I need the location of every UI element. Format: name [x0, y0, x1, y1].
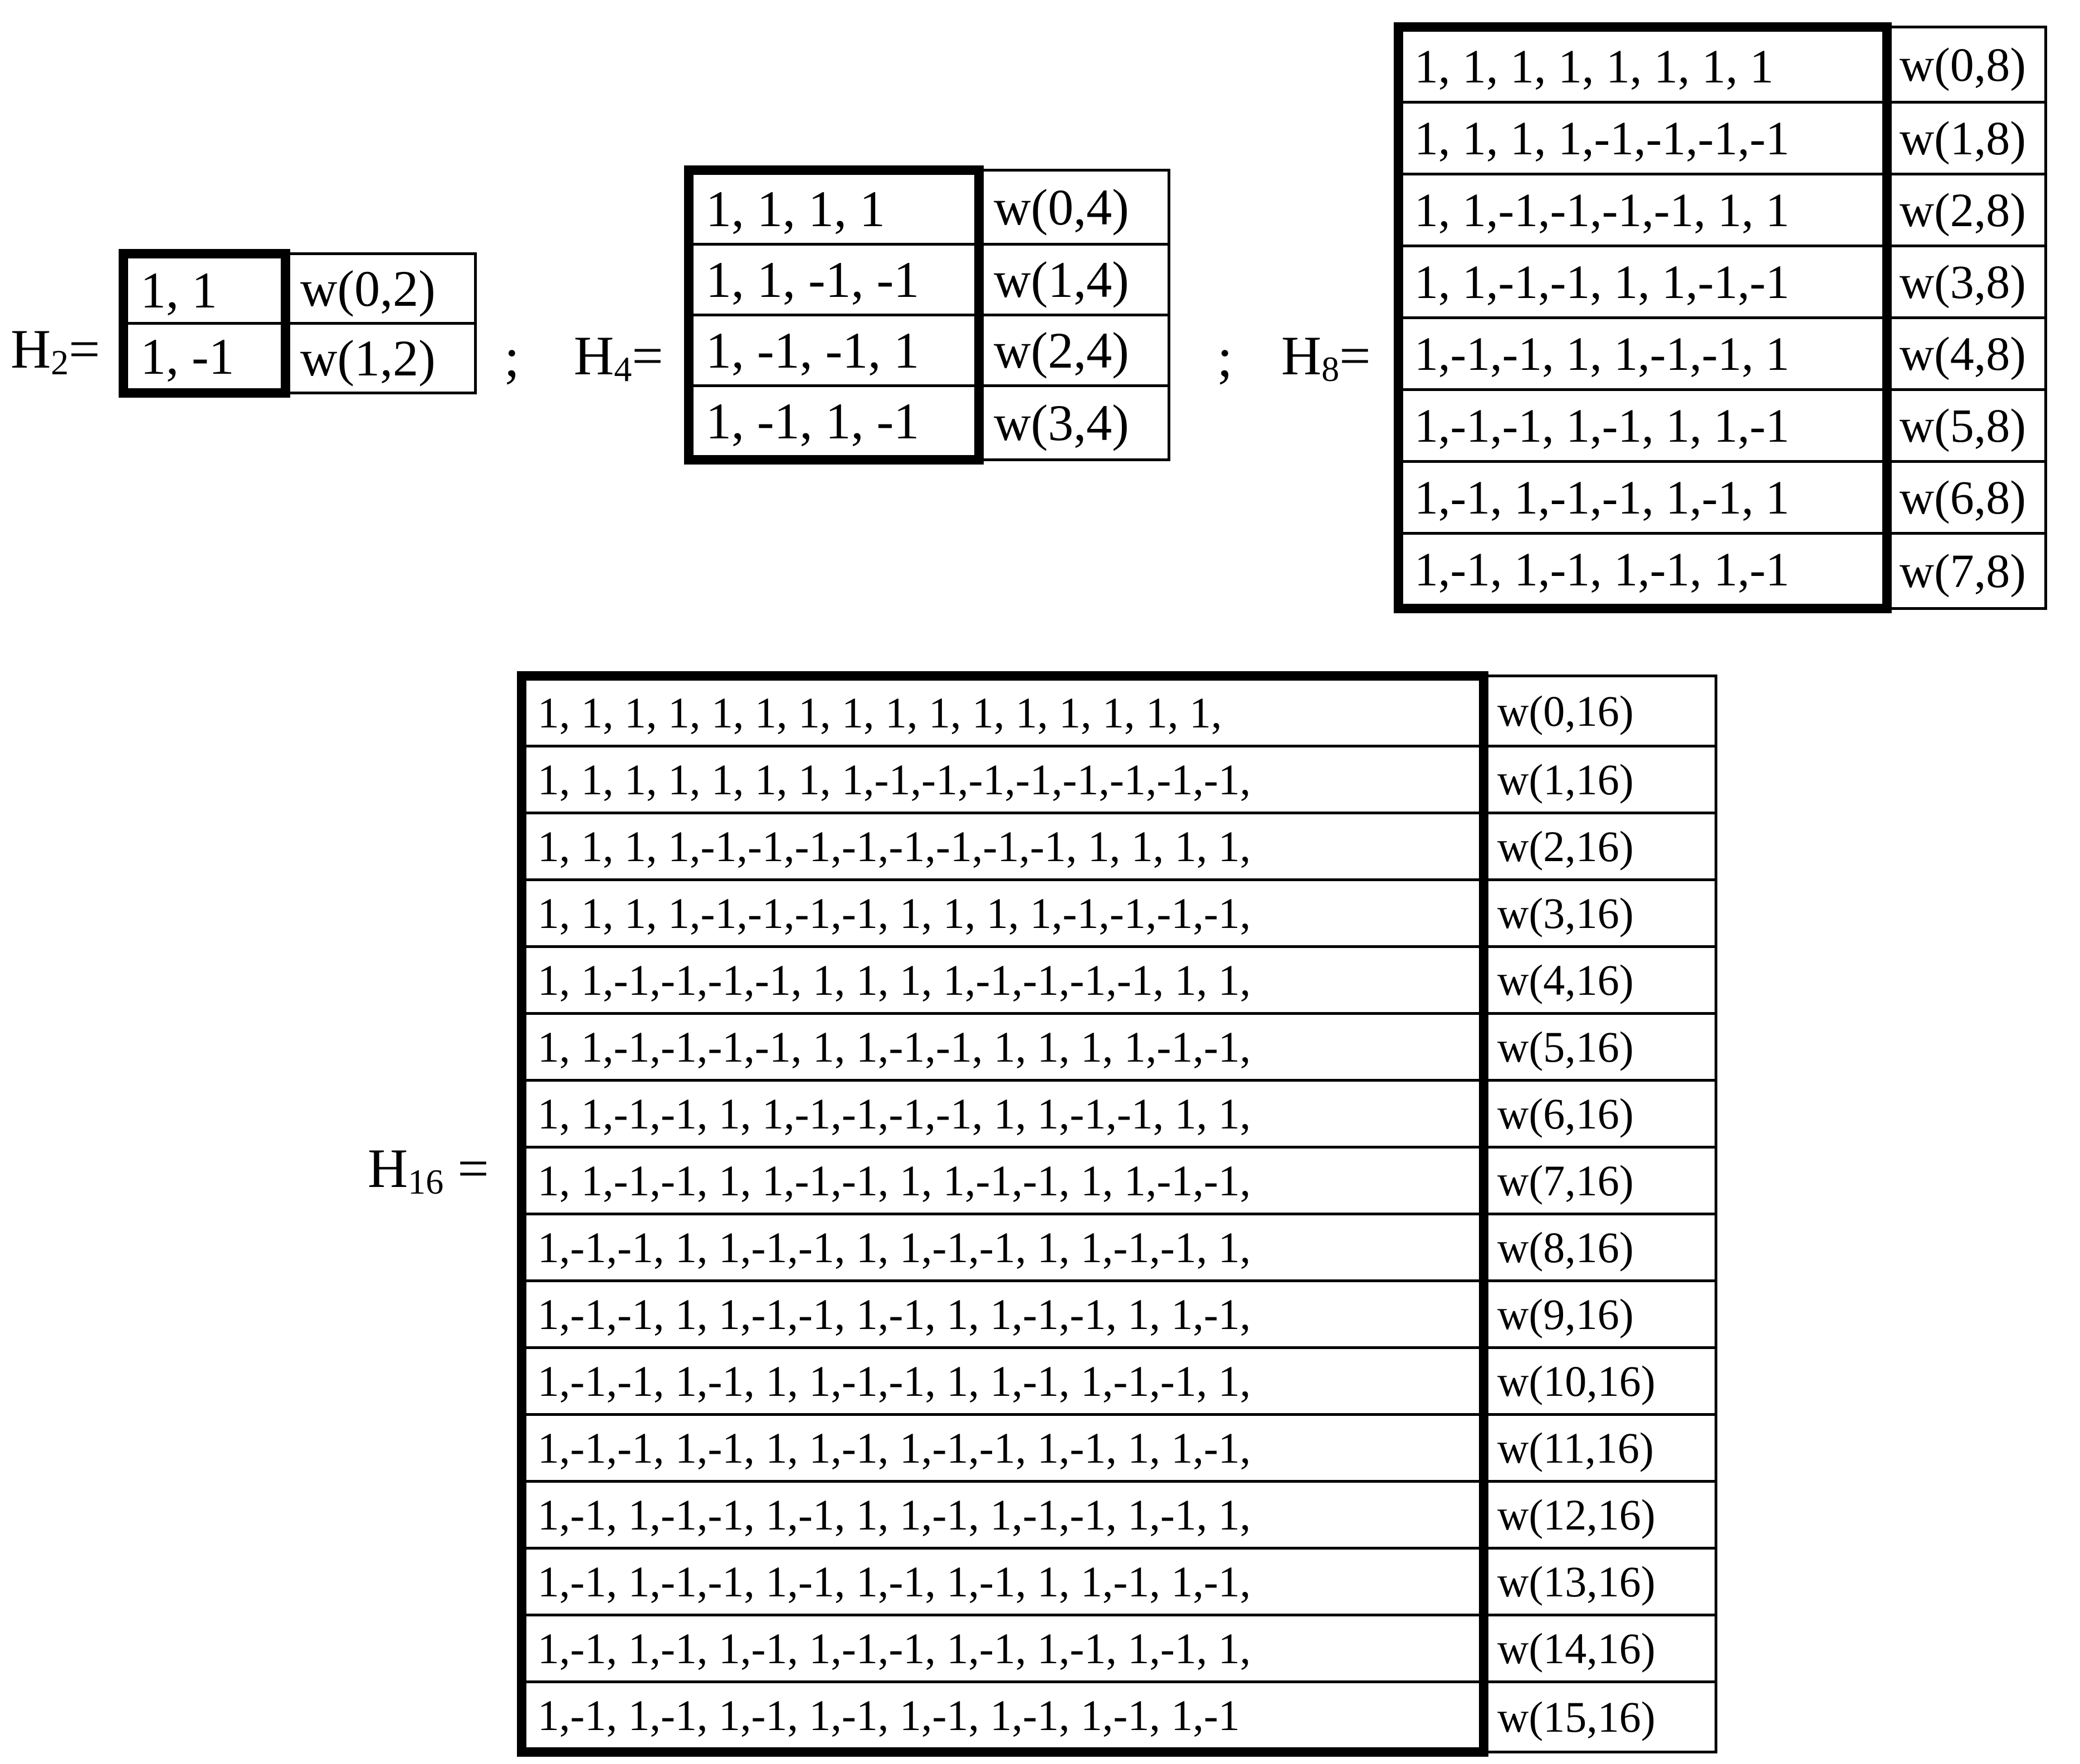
h4-row-1-values: 1, 1, -1, -1	[689, 245, 979, 315]
h16-row-2-values: 1, 1, 1, 1,-1,-1,-1,-1,-1,-1,-1,-1, 1, 1…	[522, 813, 1484, 880]
h16-label-base: H	[368, 1137, 408, 1199]
h4-row: 1, 1, -1, -1w(1,4)	[689, 245, 1169, 315]
h8-row: 1, 1,-1,-1, 1, 1,-1,-1w(3,8)	[1399, 246, 2046, 318]
h2-row-1-walsh-label: w(1,2)	[286, 324, 476, 393]
h8-row: 1, 1,-1,-1,-1,-1, 1, 1w(2,8)	[1399, 174, 2046, 246]
h8-row-3-values: 1, 1,-1,-1, 1, 1,-1,-1	[1399, 246, 1887, 318]
h2-row-1-values: 1, -1	[124, 324, 286, 393]
h8-row-6-walsh-label: w(6,8)	[1887, 462, 2046, 534]
h16-row-15-walsh-label: w(15,16)	[1484, 1682, 1716, 1752]
h2-label: H2=	[11, 321, 100, 377]
h16-row: 1, 1, 1, 1, 1, 1, 1, 1, 1, 1, 1, 1, 1, 1…	[522, 676, 1716, 746]
h4-row-2-walsh-label: w(2,4)	[979, 315, 1169, 386]
h16-table: 1, 1, 1, 1, 1, 1, 1, 1, 1, 1, 1, 1, 1, 1…	[517, 671, 1717, 1757]
h8-row: 1,-1, 1,-1, 1,-1, 1,-1w(7,8)	[1399, 534, 2046, 609]
h8-row-7-values: 1,-1, 1,-1, 1,-1, 1,-1	[1399, 534, 1887, 609]
h8-row-5-walsh-label: w(5,8)	[1887, 390, 2046, 462]
h16-row-14-values: 1,-1, 1,-1, 1,-1, 1,-1,-1, 1,-1, 1,-1, 1…	[522, 1615, 1484, 1682]
h16-row: 1,-1, 1,-1, 1,-1, 1,-1, 1,-1, 1,-1, 1,-1…	[522, 1682, 1716, 1752]
figure-canvas: H2= 1, 1w(0,2)1, -1w(1,2) ; H4= 1, 1, 1,…	[0, 0, 2080, 1764]
h16-row: 1,-1, 1,-1,-1, 1,-1, 1, 1,-1, 1,-1,-1, 1…	[522, 1482, 1716, 1548]
h8-row: 1,-1,-1, 1,-1, 1, 1,-1w(5,8)	[1399, 390, 2046, 462]
h16-row: 1,-1,-1, 1,-1, 1, 1,-1,-1, 1, 1,-1, 1,-1…	[522, 1348, 1716, 1415]
h16-row-13-values: 1,-1, 1,-1,-1, 1,-1, 1,-1, 1,-1, 1, 1,-1…	[522, 1548, 1484, 1615]
h8-row: 1, 1, 1, 1, 1, 1, 1, 1w(0,8)	[1399, 27, 2046, 102]
h16-row-11-walsh-label: w(11,16)	[1484, 1415, 1716, 1482]
h16-row-9-values: 1,-1,-1, 1, 1,-1,-1, 1,-1, 1, 1,-1,-1, 1…	[522, 1281, 1484, 1348]
h16-row: 1, 1, 1, 1,-1,-1,-1,-1, 1, 1, 1, 1,-1,-1…	[522, 880, 1716, 947]
h16-row-3-walsh-label: w(3,16)	[1484, 880, 1716, 947]
h4-row-3-walsh-label: w(3,4)	[979, 386, 1169, 460]
h16-row: 1, 1, 1, 1, 1, 1, 1, 1,-1,-1,-1,-1,-1,-1…	[522, 746, 1716, 813]
h2-label-base: H	[11, 318, 51, 380]
separator-semicolon-2: ;	[1217, 330, 1233, 385]
h16-row: 1,-1, 1,-1, 1,-1, 1,-1,-1, 1,-1, 1,-1, 1…	[522, 1615, 1716, 1682]
h16-label-equals: =	[443, 1137, 489, 1199]
separator-semicolon-1: ;	[504, 330, 520, 385]
h16-row-12-values: 1,-1, 1,-1,-1, 1,-1, 1, 1,-1, 1,-1,-1, 1…	[522, 1482, 1484, 1548]
h16-row-7-walsh-label: w(7,16)	[1484, 1147, 1716, 1214]
h16-row-15-values: 1,-1, 1,-1, 1,-1, 1,-1, 1,-1, 1,-1, 1,-1…	[522, 1682, 1484, 1752]
h16-row-5-walsh-label: w(5,16)	[1484, 1014, 1716, 1081]
h16-row: 1, 1,-1,-1, 1, 1,-1,-1,-1,-1, 1, 1,-1,-1…	[522, 1081, 1716, 1147]
h16-row-8-values: 1,-1,-1, 1, 1,-1,-1, 1, 1,-1,-1, 1, 1,-1…	[522, 1214, 1484, 1281]
h4-label: H4=	[574, 328, 663, 384]
h16-row-6-walsh-label: w(6,16)	[1484, 1081, 1716, 1147]
h2-row: 1, -1w(1,2)	[124, 324, 476, 393]
h2-row: 1, 1w(0,2)	[124, 254, 476, 324]
h8-row-4-walsh-label: w(4,8)	[1887, 318, 2046, 390]
h16-row: 1, 1,-1,-1, 1, 1,-1,-1, 1, 1,-1,-1, 1, 1…	[522, 1147, 1716, 1214]
h2-table: 1, 1w(0,2)1, -1w(1,2)	[119, 249, 477, 398]
h16-row: 1,-1,-1, 1, 1,-1,-1, 1,-1, 1, 1,-1,-1, 1…	[522, 1281, 1716, 1348]
h16-row-10-walsh-label: w(10,16)	[1484, 1348, 1716, 1415]
h4-row: 1, 1, 1, 1w(0,4)	[689, 170, 1169, 245]
h16-row-10-values: 1,-1,-1, 1,-1, 1, 1,-1,-1, 1, 1,-1, 1,-1…	[522, 1348, 1484, 1415]
h8-label-subscript: 8	[1321, 349, 1339, 389]
h4-row-3-values: 1, -1, 1, -1	[689, 386, 979, 460]
h8-row: 1,-1,-1, 1, 1,-1,-1, 1w(4,8)	[1399, 318, 2046, 390]
h16-label-subscript: 16	[408, 1162, 443, 1201]
h4-row: 1, -1, 1, -1w(3,4)	[689, 386, 1169, 460]
h16-row-2-walsh-label: w(2,16)	[1484, 813, 1716, 880]
h16-row-9-walsh-label: w(9,16)	[1484, 1281, 1716, 1348]
h16-row-4-values: 1, 1,-1,-1,-1,-1, 1, 1, 1, 1,-1,-1,-1,-1…	[522, 947, 1484, 1014]
h8-row-5-values: 1,-1,-1, 1,-1, 1, 1,-1	[1399, 390, 1887, 462]
h16-row-7-values: 1, 1,-1,-1, 1, 1,-1,-1, 1, 1,-1,-1, 1, 1…	[522, 1147, 1484, 1214]
h8-row: 1,-1, 1,-1,-1, 1,-1, 1w(6,8)	[1399, 462, 2046, 534]
h4-label-base: H	[574, 325, 614, 387]
h2-label-equals: =	[69, 318, 100, 380]
h16-row-5-values: 1, 1,-1,-1,-1,-1, 1, 1,-1,-1, 1, 1, 1, 1…	[522, 1014, 1484, 1081]
h4-table: 1, 1, 1, 1w(0,4)1, 1, -1, -1w(1,4)1, -1,…	[684, 165, 1170, 465]
h4-label-equals: =	[632, 325, 663, 387]
h16-label: H16 =	[368, 1141, 489, 1196]
h2-row-0-values: 1, 1	[124, 254, 286, 324]
h8-row: 1, 1, 1, 1,-1,-1,-1,-1w(1,8)	[1399, 102, 2046, 174]
h8-table: 1, 1, 1, 1, 1, 1, 1, 1w(0,8)1, 1, 1, 1,-…	[1394, 22, 2047, 613]
h8-row-0-values: 1, 1, 1, 1, 1, 1, 1, 1	[1399, 27, 1887, 102]
h16-row-12-walsh-label: w(12,16)	[1484, 1482, 1716, 1548]
h8-row-3-walsh-label: w(3,8)	[1887, 246, 2046, 318]
h16-row: 1,-1,-1, 1,-1, 1, 1,-1, 1,-1,-1, 1,-1, 1…	[522, 1415, 1716, 1482]
h16-row-14-walsh-label: w(14,16)	[1484, 1615, 1716, 1682]
h8-label-equals: =	[1339, 325, 1370, 387]
h16-row-6-values: 1, 1,-1,-1, 1, 1,-1,-1,-1,-1, 1, 1,-1,-1…	[522, 1081, 1484, 1147]
h16-row-3-values: 1, 1, 1, 1,-1,-1,-1,-1, 1, 1, 1, 1,-1,-1…	[522, 880, 1484, 947]
h2-row-0-walsh-label: w(0,2)	[286, 254, 476, 324]
h8-row-2-values: 1, 1,-1,-1,-1,-1, 1, 1	[1399, 174, 1887, 246]
h16-row-0-walsh-label: w(0,16)	[1484, 676, 1716, 746]
h16-row: 1, 1,-1,-1,-1,-1, 1, 1,-1,-1, 1, 1, 1, 1…	[522, 1014, 1716, 1081]
h4-label-subscript: 4	[614, 349, 632, 389]
h16-row-0-values: 1, 1, 1, 1, 1, 1, 1, 1, 1, 1, 1, 1, 1, 1…	[522, 676, 1484, 746]
h16-row-4-walsh-label: w(4,16)	[1484, 947, 1716, 1014]
h16-row-1-walsh-label: w(1,16)	[1484, 746, 1716, 813]
h4-row-2-values: 1, -1, -1, 1	[689, 315, 979, 386]
h16-row-8-walsh-label: w(8,16)	[1484, 1214, 1716, 1281]
h8-row-6-values: 1,-1, 1,-1,-1, 1,-1, 1	[1399, 462, 1887, 534]
h16-row: 1, 1, 1, 1,-1,-1,-1,-1,-1,-1,-1,-1, 1, 1…	[522, 813, 1716, 880]
h16-row: 1, 1,-1,-1,-1,-1, 1, 1, 1, 1,-1,-1,-1,-1…	[522, 947, 1716, 1014]
h2-label-subscript: 2	[51, 343, 69, 382]
h16-row-1-values: 1, 1, 1, 1, 1, 1, 1, 1,-1,-1,-1,-1,-1,-1…	[522, 746, 1484, 813]
h4-row: 1, -1, -1, 1w(2,4)	[689, 315, 1169, 386]
h8-row-4-values: 1,-1,-1, 1, 1,-1,-1, 1	[1399, 318, 1887, 390]
h16-row: 1,-1,-1, 1, 1,-1,-1, 1, 1,-1,-1, 1, 1,-1…	[522, 1214, 1716, 1281]
h16-row: 1,-1, 1,-1,-1, 1,-1, 1,-1, 1,-1, 1, 1,-1…	[522, 1548, 1716, 1615]
h8-label: H8=	[1281, 328, 1371, 384]
h4-row-0-values: 1, 1, 1, 1	[689, 170, 979, 245]
h8-label-base: H	[1281, 325, 1321, 387]
h8-row-7-walsh-label: w(7,8)	[1887, 534, 2046, 609]
h8-row-1-values: 1, 1, 1, 1,-1,-1,-1,-1	[1399, 102, 1887, 174]
h8-row-1-walsh-label: w(1,8)	[1887, 102, 2046, 174]
h16-row-11-values: 1,-1,-1, 1,-1, 1, 1,-1, 1,-1,-1, 1,-1, 1…	[522, 1415, 1484, 1482]
h4-row-0-walsh-label: w(0,4)	[979, 170, 1169, 245]
h16-row-13-walsh-label: w(13,16)	[1484, 1548, 1716, 1615]
h4-row-1-walsh-label: w(1,4)	[979, 245, 1169, 315]
h8-row-2-walsh-label: w(2,8)	[1887, 174, 2046, 246]
h8-row-0-walsh-label: w(0,8)	[1887, 27, 2046, 102]
